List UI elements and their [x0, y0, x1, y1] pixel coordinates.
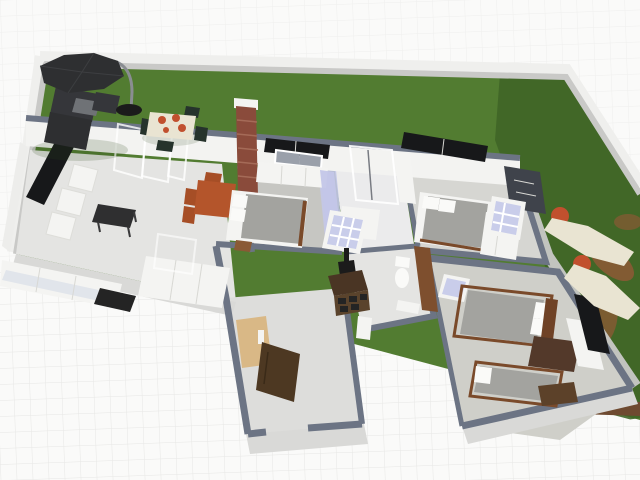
master-bed[interactable] — [226, 190, 308, 252]
3d-floorplan-viewport[interactable] — [0, 0, 640, 480]
garden-table — [146, 112, 196, 140]
lattice-window-bath[interactable] — [322, 210, 368, 254]
lattice-window-east-1[interactable] — [486, 196, 526, 240]
se-cabinet[interactable] — [538, 382, 578, 406]
pedestal[interactable] — [356, 316, 372, 340]
east-bed[interactable] — [414, 192, 492, 252]
se-double-bed[interactable] — [454, 286, 558, 346]
